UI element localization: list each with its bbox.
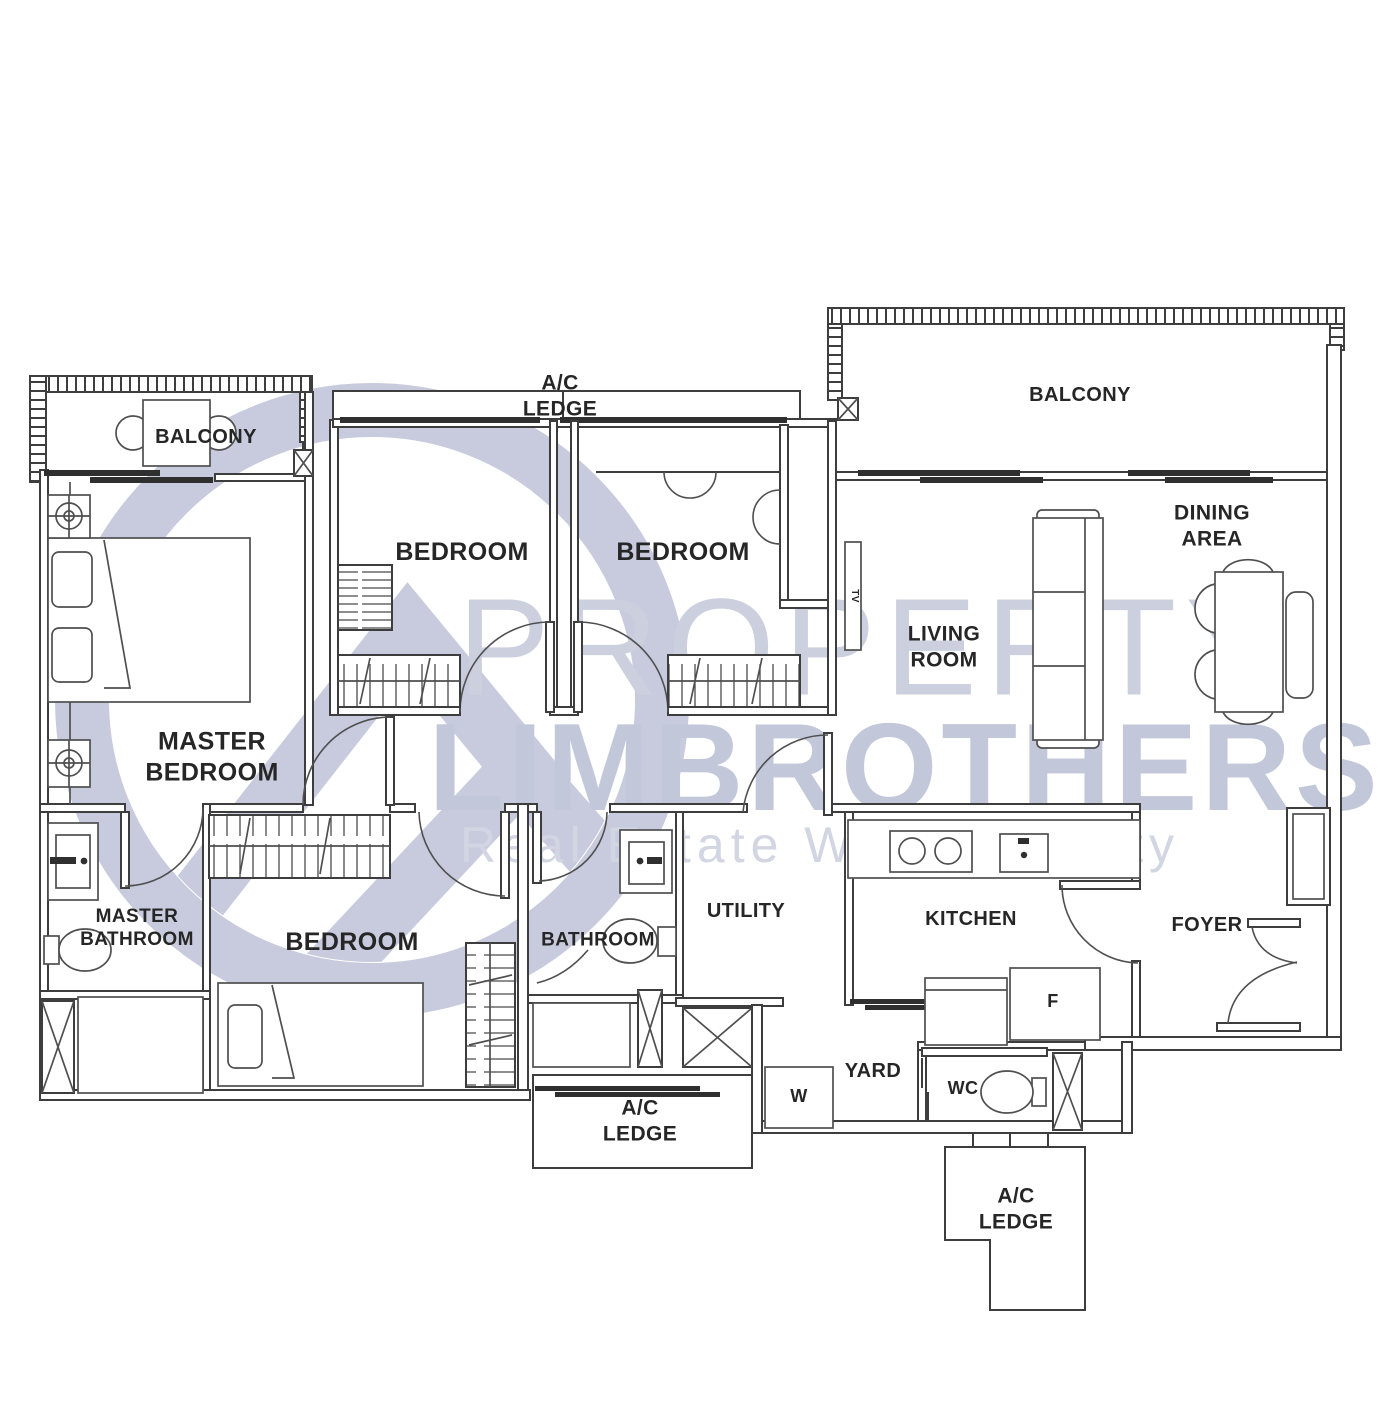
room-label-balcony-right: BALCONY	[1029, 383, 1131, 407]
room-label-living-room: LIVINGROOM	[908, 621, 980, 672]
room-label-ac-ledge-bottom-right: A/CLEDGE	[979, 1183, 1053, 1234]
room-label-yard: YARD	[845, 1059, 901, 1083]
room-label-ac-ledge-top: A/CLEDGE	[523, 370, 597, 421]
room-label-dining-area: DININGAREA	[1174, 500, 1250, 551]
room-label-utility: UTILITY	[707, 899, 785, 923]
room-label-fridge: F	[1047, 991, 1058, 1013]
room-label-bedroom-2: BEDROOM	[616, 537, 749, 568]
room-label-ac-ledge-bottom-left: A/CLEDGE	[603, 1095, 677, 1146]
room-label-tv: TV	[848, 589, 860, 603]
room-label-bedroom-3: BEDROOM	[285, 927, 418, 958]
room-label-foyer: FOYER	[1172, 913, 1243, 937]
floorplan-page: PROPERTY LIMBROTHERS Real Estate With In…	[0, 0, 1400, 1414]
room-label-bedroom-1: BEDROOM	[395, 537, 528, 568]
room-label-washer: W	[790, 1086, 807, 1108]
room-label-kitchen: KITCHEN	[925, 907, 1017, 931]
room-label-balcony-left: BALCONY	[155, 425, 257, 449]
room-label-master-bedroom: MASTERBEDROOM	[145, 727, 278, 788]
room-label-bathroom: BATHROOM	[541, 928, 655, 951]
room-labels: BALCONYA/CLEDGEBEDROOMBEDROOMBALCONYDINI…	[0, 0, 1400, 1414]
room-label-master-bathroom: MASTERBATHROOM	[80, 905, 194, 951]
room-label-wc: WC	[948, 1078, 979, 1100]
